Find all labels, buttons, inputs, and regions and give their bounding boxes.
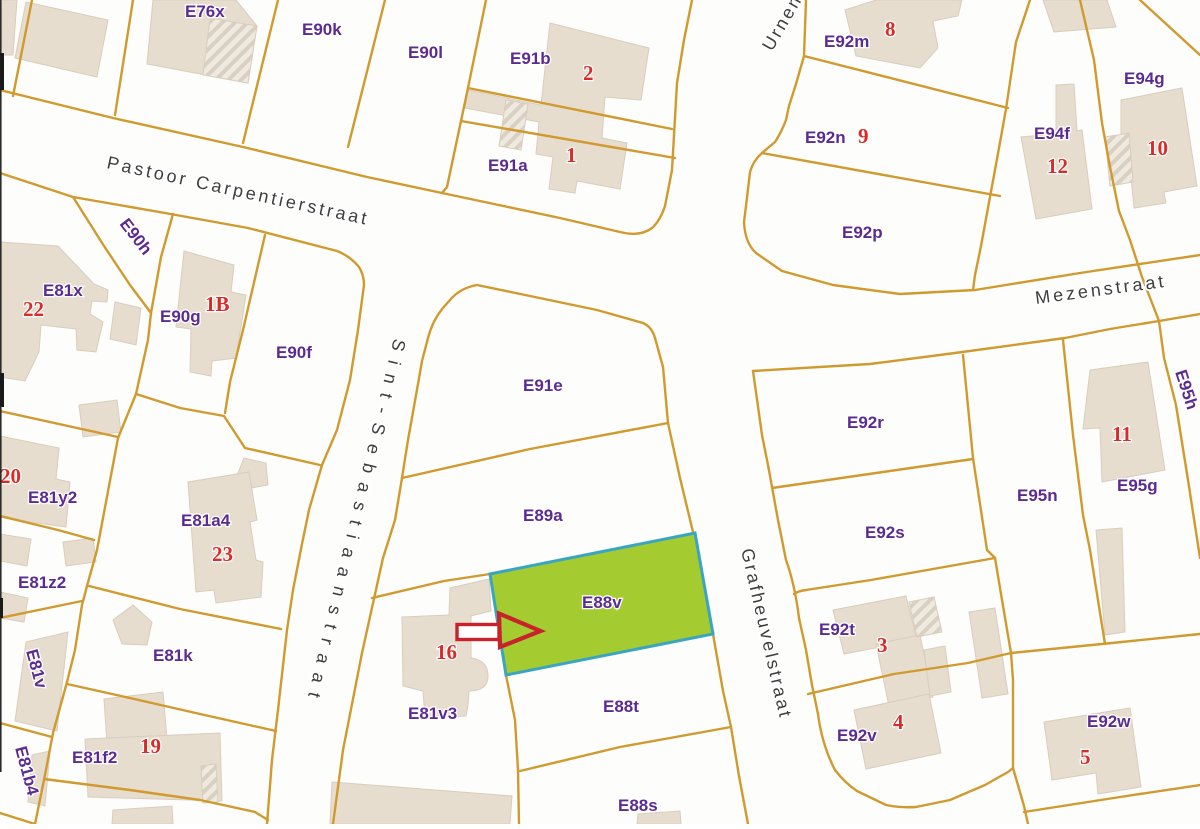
svg-text:E92r: E92r	[847, 413, 884, 432]
svg-text:E81x: E81x	[43, 281, 83, 300]
svg-text:E88s: E88s	[618, 796, 658, 815]
svg-text:9: 9	[858, 124, 869, 148]
svg-text:E92n: E92n	[805, 128, 846, 147]
svg-text:2: 2	[583, 61, 594, 85]
svg-text:11: 11	[1112, 422, 1132, 446]
svg-text:E95n: E95n	[1017, 486, 1058, 505]
svg-text:E95g: E95g	[1117, 476, 1158, 495]
svg-text:20: 20	[0, 464, 21, 488]
svg-text:E90l: E90l	[408, 43, 443, 62]
svg-text:E94f: E94f	[1034, 124, 1070, 143]
svg-text:1: 1	[566, 143, 577, 167]
svg-text:E90k: E90k	[302, 20, 342, 39]
svg-text:E81v3: E81v3	[408, 704, 457, 723]
svg-text:4: 4	[893, 710, 904, 734]
svg-text:E81f2: E81f2	[72, 748, 117, 767]
svg-text:22: 22	[23, 297, 44, 321]
svg-text:E92v: E92v	[837, 726, 877, 745]
svg-text:10: 10	[1147, 136, 1168, 160]
svg-text:E90g: E90g	[160, 307, 201, 326]
svg-text:E81y2: E81y2	[28, 488, 77, 507]
svg-text:5: 5	[1080, 745, 1091, 769]
svg-text:3: 3	[877, 633, 888, 657]
svg-text:E89a: E89a	[523, 506, 563, 525]
svg-text:1B: 1B	[205, 292, 230, 316]
svg-text:E92t: E92t	[819, 620, 855, 639]
svg-text:E76x: E76x	[185, 2, 225, 21]
svg-text:E81k: E81k	[153, 646, 193, 665]
svg-text:E81a4: E81a4	[181, 511, 231, 530]
svg-text:23: 23	[212, 542, 233, 566]
svg-text:E92p: E92p	[842, 223, 883, 242]
svg-text:19: 19	[140, 734, 161, 758]
svg-text:16: 16	[436, 640, 457, 664]
svg-text:E91a: E91a	[488, 156, 528, 175]
svg-text:8: 8	[885, 17, 896, 41]
svg-text:12: 12	[1047, 154, 1068, 178]
svg-text:E90f: E90f	[276, 343, 312, 362]
svg-text:E91e: E91e	[523, 376, 563, 395]
svg-text:E92s: E92s	[865, 523, 905, 542]
svg-text:E81z2: E81z2	[18, 573, 66, 592]
svg-text:E91b: E91b	[510, 49, 551, 68]
svg-text:E88v: E88v	[582, 593, 622, 612]
svg-text:E88t: E88t	[603, 697, 639, 716]
svg-text:E92m: E92m	[824, 32, 869, 51]
svg-text:E92w: E92w	[1087, 712, 1131, 731]
svg-text:E94g: E94g	[1124, 69, 1165, 88]
